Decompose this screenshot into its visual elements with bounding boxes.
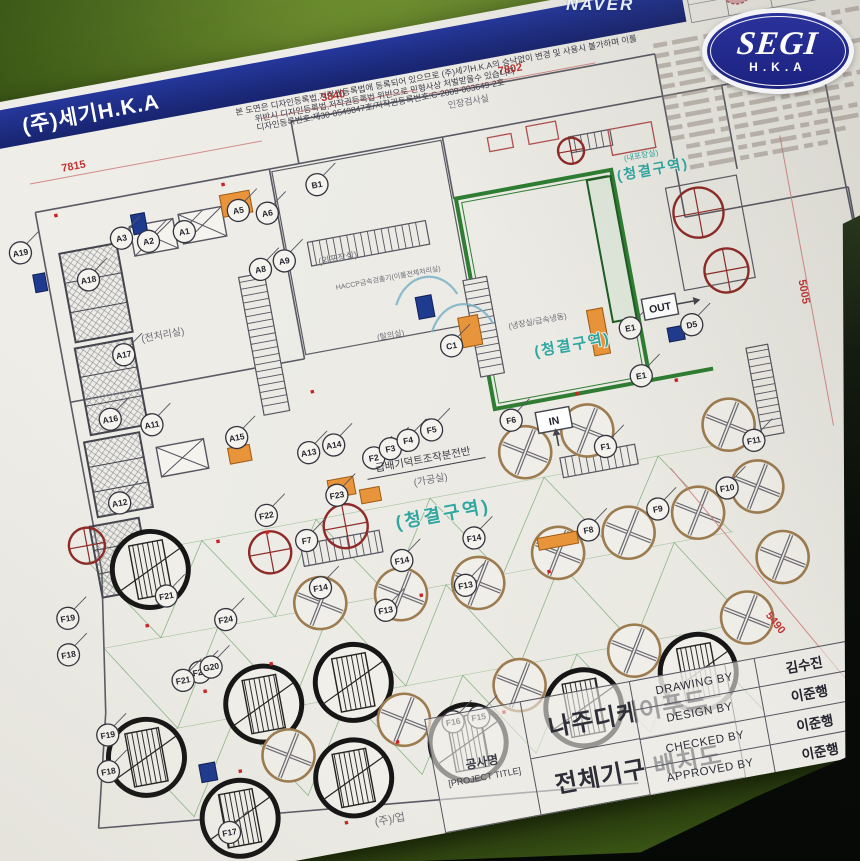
segi-logo-ellipse: SEGI H.K.A bbox=[707, 13, 849, 89]
bubble-text: A1 bbox=[178, 226, 191, 238]
equipment-red bbox=[487, 133, 513, 151]
red-marker bbox=[216, 539, 220, 543]
bubble-leader bbox=[338, 423, 354, 435]
flow-arrow-head bbox=[693, 296, 701, 305]
bubble-leader bbox=[696, 303, 712, 315]
bubble-leader bbox=[289, 239, 305, 251]
bubble-text: A2 bbox=[142, 235, 155, 247]
conveyor bbox=[239, 273, 290, 415]
equipment-orange bbox=[359, 486, 381, 503]
red-marker bbox=[238, 769, 242, 773]
bubble-leader bbox=[271, 494, 287, 506]
equipment-blue bbox=[33, 273, 48, 293]
bubble-leader bbox=[73, 633, 89, 645]
bubble-text: F3 bbox=[385, 443, 397, 455]
wall-line bbox=[291, 121, 299, 163]
clean-zone-ext bbox=[650, 369, 713, 381]
stamp-grid-line bbox=[688, 0, 860, 5]
stamp-grid-line bbox=[764, 0, 772, 8]
wall-line bbox=[848, 187, 860, 346]
equipment-blue bbox=[415, 295, 435, 320]
bubble-text: E1 bbox=[624, 322, 636, 334]
red-marker bbox=[396, 740, 400, 744]
red-marker bbox=[269, 662, 273, 666]
bubble-text: A5 bbox=[232, 204, 245, 216]
bubble-text: F1 bbox=[600, 441, 612, 453]
flow-text: IN bbox=[548, 415, 561, 429]
red-marker bbox=[419, 593, 423, 597]
red-marker bbox=[265, 530, 269, 534]
segi-logo: SEGI H.K.A bbox=[702, 8, 854, 94]
bubble-leader bbox=[157, 403, 173, 415]
bubble-leader bbox=[325, 566, 341, 578]
red-marker bbox=[221, 182, 225, 186]
bubble-text: D5 bbox=[686, 319, 699, 331]
photo-scene: NAVER 78153840780250055490A19A18A17A16A1… bbox=[0, 0, 860, 861]
red-marker bbox=[203, 689, 207, 693]
bubble-leader bbox=[436, 408, 452, 420]
notes-text-line bbox=[671, 100, 860, 139]
drawing-paper: 78153840780250055490A19A18A17A16A15A13A1… bbox=[0, 0, 860, 861]
bubble-text: A6 bbox=[261, 207, 274, 219]
zone-label: (가공실) bbox=[413, 471, 449, 489]
bubble-leader bbox=[479, 516, 495, 528]
zone-label: (전처리실) bbox=[140, 325, 185, 345]
red-marker bbox=[547, 570, 551, 574]
bubble-text: F7 bbox=[301, 535, 313, 547]
bubble-text: B1 bbox=[311, 179, 324, 191]
red-marker bbox=[310, 390, 314, 394]
bubble-text: F4 bbox=[402, 434, 414, 446]
bubble-leader bbox=[216, 645, 232, 657]
bubble-leader bbox=[72, 597, 88, 609]
dim-text: 7815 bbox=[61, 159, 87, 175]
red-marker bbox=[344, 821, 348, 825]
bubble-text: F8 bbox=[583, 524, 595, 536]
bubble-text: F9 bbox=[652, 503, 664, 515]
bubble-text: F6 bbox=[505, 414, 517, 426]
zone-label: (주)/업 bbox=[374, 810, 406, 828]
red-marker bbox=[674, 378, 678, 382]
bubble-text: A8 bbox=[254, 263, 267, 275]
bubble-leader bbox=[230, 598, 246, 610]
freezer-room bbox=[587, 176, 637, 322]
bubble-leader bbox=[25, 231, 41, 243]
naver-watermark: NAVER bbox=[566, 0, 634, 15]
bubble-text: E1 bbox=[635, 370, 647, 382]
segi-brand-text: SEGI bbox=[736, 29, 820, 59]
bubble-text: A9 bbox=[278, 255, 291, 267]
equipment-blue bbox=[199, 762, 218, 783]
wall-line bbox=[442, 137, 453, 199]
zone-label: (탈의실) bbox=[376, 327, 405, 342]
zone-label: (청결구역) bbox=[533, 329, 612, 361]
zone-label: (냉장실/급속냉동) bbox=[508, 310, 568, 331]
red-marker bbox=[145, 624, 149, 628]
bubble-text: F5 bbox=[426, 424, 438, 436]
dim-text: 5005 bbox=[796, 279, 812, 305]
bubble-text: C1 bbox=[445, 340, 458, 352]
red-marker bbox=[54, 213, 58, 217]
bubble-leader bbox=[241, 416, 257, 428]
equipment-red bbox=[526, 121, 559, 144]
bubble-leader bbox=[322, 163, 338, 175]
flow-arrow bbox=[677, 301, 694, 304]
bubble-text: A3 bbox=[115, 232, 128, 244]
conveyor bbox=[569, 129, 613, 152]
storage-rack bbox=[59, 243, 132, 342]
red-marker bbox=[575, 391, 579, 395]
